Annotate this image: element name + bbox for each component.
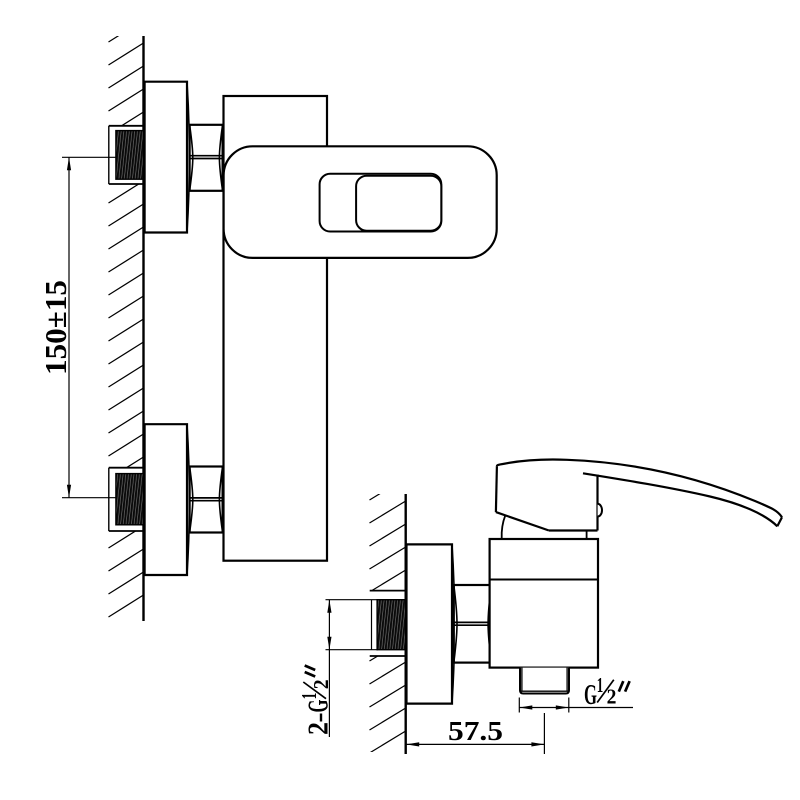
svg-text:150±15: 150±15 [38,280,73,375]
svg-text:2: 2 [309,679,333,689]
svg-text:G: G [303,700,335,713]
svg-text:57.5: 57.5 [448,716,503,746]
svg-text:G: G [584,679,597,711]
svg-text:1: 1 [297,693,321,700]
svg-text:2: 2 [607,685,617,709]
svg-text:2: 2 [303,722,335,735]
svg-text:1: 1 [597,673,604,697]
